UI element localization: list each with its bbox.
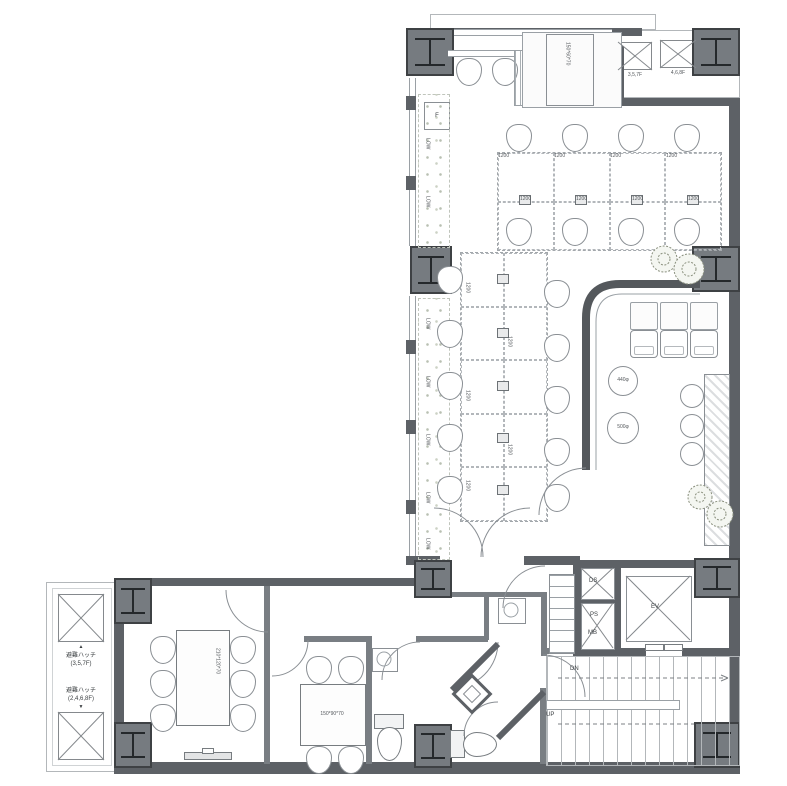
structural-column [414,560,452,598]
evac-hatch-left-bottom [58,712,104,760]
side-table [630,302,658,330]
chair [456,58,482,86]
structural-column [692,246,740,292]
planter-low-label: LOW [424,434,430,445]
bar-counter [704,374,730,546]
partition [484,592,489,640]
desk [504,467,547,521]
partition [541,592,547,656]
elevator-wall [613,648,646,656]
elevator-door [645,644,664,651]
planter-low-label: LOW [424,196,430,207]
evac-hatch-top-b [660,40,696,68]
table-size-label: 150*90*70 [302,712,362,718]
stair-rail [546,700,680,710]
chair [544,438,570,466]
chair [544,386,570,414]
partition [416,636,488,642]
wall-mullion [406,420,416,434]
desk-width-label: 1200 [506,336,512,347]
stool [680,414,704,438]
desk-width-label: 1200 [506,444,512,455]
desk-width-label: 1200 [464,480,470,491]
desk-width-label: 1200 [498,154,509,160]
chair [544,484,570,512]
chair [338,656,364,684]
armchair [690,330,718,358]
kitchen-sink [498,598,526,624]
desk [504,307,547,361]
meeting-table-large [176,630,230,726]
angled-sink [454,676,491,713]
elevator-wall [682,648,740,656]
dn-label: DN [570,666,579,673]
chair [230,704,256,732]
ps-mb-shaft [581,603,615,650]
wall-mullion [406,96,416,110]
structural-column [114,578,152,624]
side-table [660,302,688,330]
table-size-label: 210*120*70 [214,648,220,674]
structural-column [692,28,740,76]
up-label: UP [546,712,554,719]
chair [150,670,176,698]
hatch-title: 避難ハッチ [52,688,110,695]
mb-label: MB [588,630,597,637]
wall [614,98,740,106]
planter-strip [418,94,450,248]
cabinet-size-label: 150*60*70 [564,42,570,65]
elevator-door [664,644,683,651]
top-hatch-label-b: 4,6,8F [658,71,698,77]
planter-low-label: LOW [424,318,430,329]
desk-width-label: 1200 [610,154,621,160]
planter-low-label: LOW [424,492,430,503]
desk [504,253,547,307]
hatch-arrow-down: ▼ [58,705,104,711]
ds-label: DS [589,578,597,585]
hatch-floors-a: (3,5,7F) [52,661,110,668]
monitor [497,485,509,495]
chair [150,636,176,664]
toilet-diagonal-walls [452,644,544,738]
armchair [630,330,658,358]
planter-low-label: LOW [424,538,430,549]
window-counter [448,50,514,57]
desk-width-label: 1200 [520,197,531,203]
chair [562,124,588,152]
chair [230,636,256,664]
round-table-500: 500φ [607,412,639,444]
round-table-label: 440φ [617,378,629,384]
tv-board [202,748,214,754]
structural-column [694,558,740,598]
partition [450,592,486,597]
desk-width-label: 1200 [666,154,677,160]
chair [544,334,570,362]
fridge-label: F [435,113,439,120]
evac-hatch-left-top [58,594,104,642]
structural-column [414,724,452,768]
top-hatch-label-a: 3,5,7F [616,73,654,79]
chair [506,124,532,152]
chair [544,280,570,308]
partition [304,636,368,642]
planter-low-label: LOW [424,138,430,149]
monitor [497,274,509,284]
structural-column [406,28,454,76]
ds-shaft [581,568,615,600]
structural-column [114,722,152,768]
partition [484,592,546,597]
hatch-arrow-up: ▲ [58,645,104,651]
ev-label: EV [651,604,659,611]
desk-width-label: 1200 [688,197,699,203]
chair [230,670,256,698]
wall [729,98,740,254]
desk-width-label: 1200 [576,197,587,203]
wall-mullion [406,500,416,514]
round-table-440: 440φ [608,366,638,396]
locker-unit [549,574,575,654]
monitor [497,433,509,443]
chair [674,124,700,152]
chair [618,124,644,152]
partition [264,586,270,764]
wall-mullion [406,340,416,354]
armchair [660,330,688,358]
desk-width-label: 1200 [464,390,470,401]
floor-plan: 150*60*70 F LOW LOW LOW LOW LOW LOW LOW … [0,0,787,786]
desk-width-label: 1200 [632,197,643,203]
chair [306,656,332,684]
monitor [497,381,509,391]
chair [150,704,176,732]
side-table [690,302,718,330]
wing-top-wall [126,578,418,586]
ps-label: PS [590,612,598,619]
toilet-bowl [377,727,402,761]
desk [504,360,547,414]
planter-low-label: LOW [424,376,430,387]
hatch-title: 避難ハッチ [52,653,110,660]
stool [680,442,704,466]
wc-sink [372,648,398,672]
round-table-label: 500φ [617,425,629,431]
toilet-bowl [463,732,497,757]
desk-width-label: 1200 [554,154,565,160]
hatch-floors-b: (2,4,6,8F) [52,696,110,703]
stool [680,384,704,408]
wall-mullion [406,176,416,190]
desk [504,414,547,468]
wall [524,556,580,565]
desk-width-label: 1200 [464,282,470,293]
